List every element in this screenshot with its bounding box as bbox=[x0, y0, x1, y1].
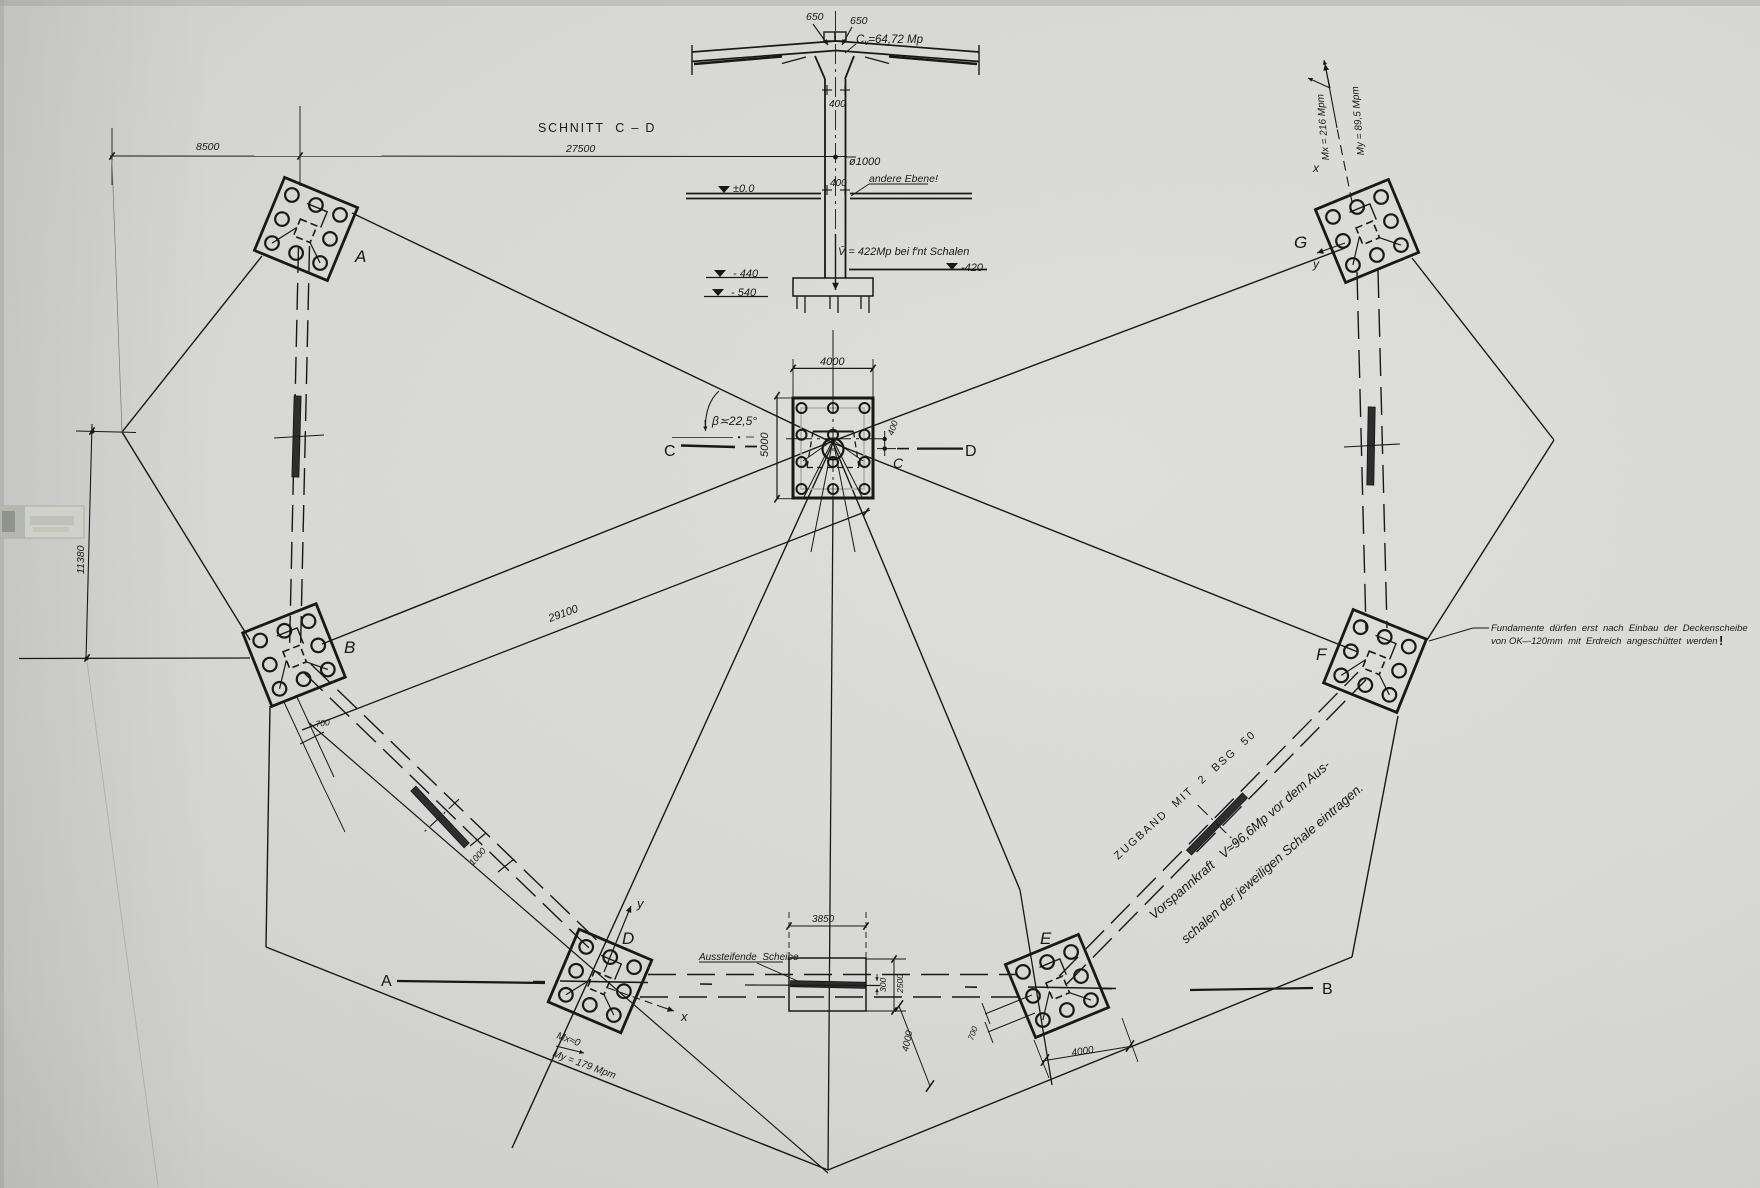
svg-text:700: 700 bbox=[315, 717, 331, 729]
svg-text:5000: 5000 bbox=[759, 432, 771, 457]
svg-text:B: B bbox=[344, 638, 355, 657]
svg-text:4000: 4000 bbox=[820, 356, 845, 368]
svg-text:β≍22,5°: β≍22,5° bbox=[711, 414, 757, 428]
svg-text:von OK–-120mm mit Erdreich: von OK–-120mm mit Erdreich angeschüttet … bbox=[1491, 636, 1718, 647]
svg-text:D: D bbox=[965, 443, 977, 460]
svg-text:V̄ = 422Mp bei f′nt Schalen: V̄ = 422Mp bei f′nt Schalen bbox=[838, 245, 969, 258]
svg-text:andere Ebene!: andere Ebene! bbox=[869, 173, 938, 185]
svg-text:B: B bbox=[1322, 981, 1333, 998]
svg-text:27500: 27500 bbox=[565, 143, 595, 155]
svg-text:!: ! bbox=[1719, 633, 1723, 648]
svg-text:x: x bbox=[680, 1009, 688, 1024]
svg-text:±0.0: ±0.0 bbox=[733, 183, 755, 195]
svg-text:- 540: - 540 bbox=[731, 287, 757, 299]
svg-text:400: 400 bbox=[829, 99, 846, 110]
svg-text:-420: -420 bbox=[961, 262, 984, 274]
svg-text:x: x bbox=[1312, 161, 1320, 175]
svg-text:300: 300 bbox=[878, 978, 888, 992]
svg-text:G: G bbox=[1294, 233, 1307, 252]
svg-text:C: C bbox=[893, 455, 904, 471]
svg-text:D: D bbox=[622, 929, 634, 948]
svg-text:Aussteifende Scheibe: Aussteifende Scheibe bbox=[698, 952, 799, 963]
svg-text:E: E bbox=[1040, 929, 1052, 948]
svg-text:3850: 3850 bbox=[812, 914, 835, 925]
svg-text:8500: 8500 bbox=[196, 141, 220, 153]
svg-text:11380: 11380 bbox=[75, 545, 87, 574]
svg-text:y: y bbox=[1312, 257, 1320, 271]
svg-text:650: 650 bbox=[850, 15, 868, 27]
svg-text:SCHNITT C – D: SCHNITT C – D bbox=[538, 121, 656, 135]
svg-text:A: A bbox=[381, 973, 392, 990]
svg-text:- 440: - 440 bbox=[733, 268, 759, 280]
svg-text:C: C bbox=[664, 443, 676, 460]
svg-text:2500: 2500 bbox=[895, 974, 905, 994]
svg-text:A: A bbox=[354, 247, 366, 266]
svg-text:Fundamente dürfen erst nach: Fundamente dürfen erst nach Einbau der D… bbox=[1491, 623, 1748, 634]
svg-text:F: F bbox=[1316, 645, 1328, 664]
svg-text:ø1000: ø1000 bbox=[849, 156, 881, 168]
svg-text:650: 650 bbox=[806, 11, 824, 23]
